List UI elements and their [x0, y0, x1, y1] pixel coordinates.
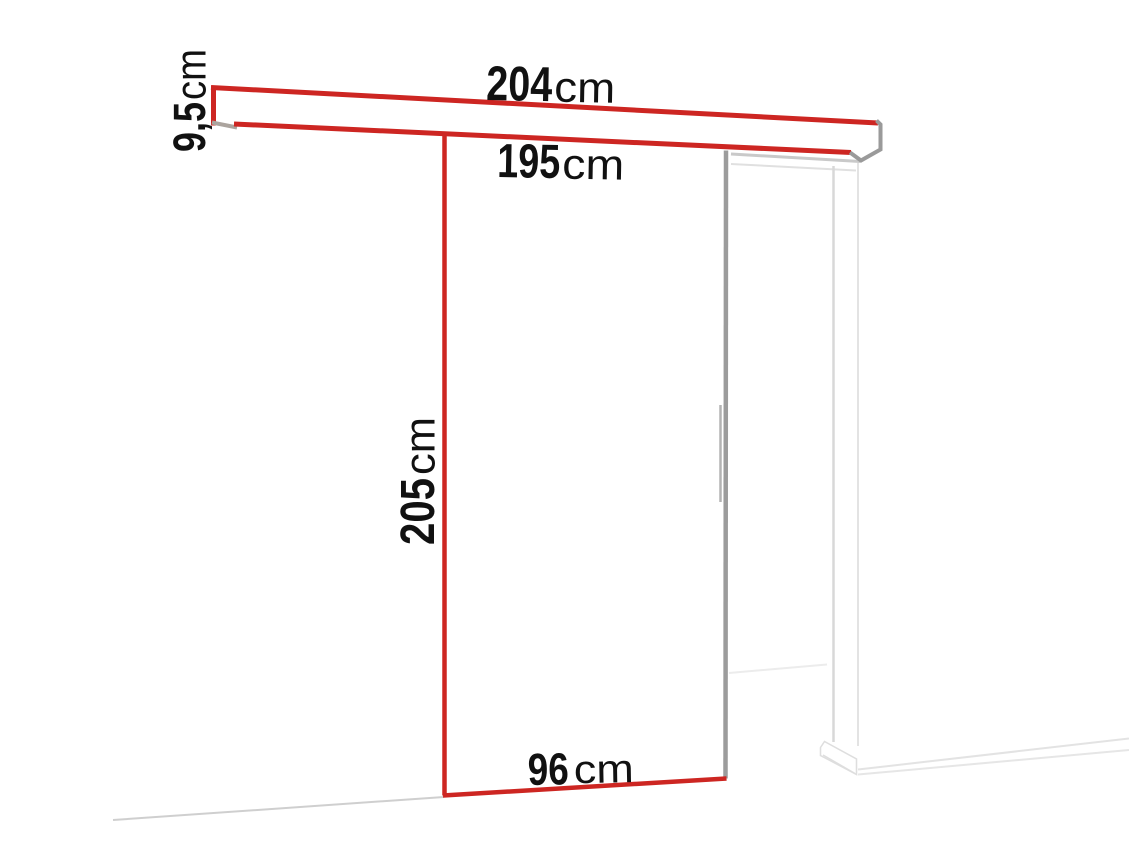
svg-text:cm: cm	[554, 64, 616, 113]
svg-text:204: 204	[486, 57, 553, 112]
svg-text:205: 205	[392, 478, 445, 545]
svg-text:9,5: 9,5	[164, 102, 215, 152]
svg-text:cm: cm	[168, 49, 216, 100]
svg-text:96: 96	[527, 743, 569, 795]
svg-text:195: 195	[497, 135, 561, 189]
svg-text:cm: cm	[562, 141, 625, 190]
svg-text:cm: cm	[573, 747, 634, 792]
svg-text:cm: cm	[397, 417, 445, 475]
